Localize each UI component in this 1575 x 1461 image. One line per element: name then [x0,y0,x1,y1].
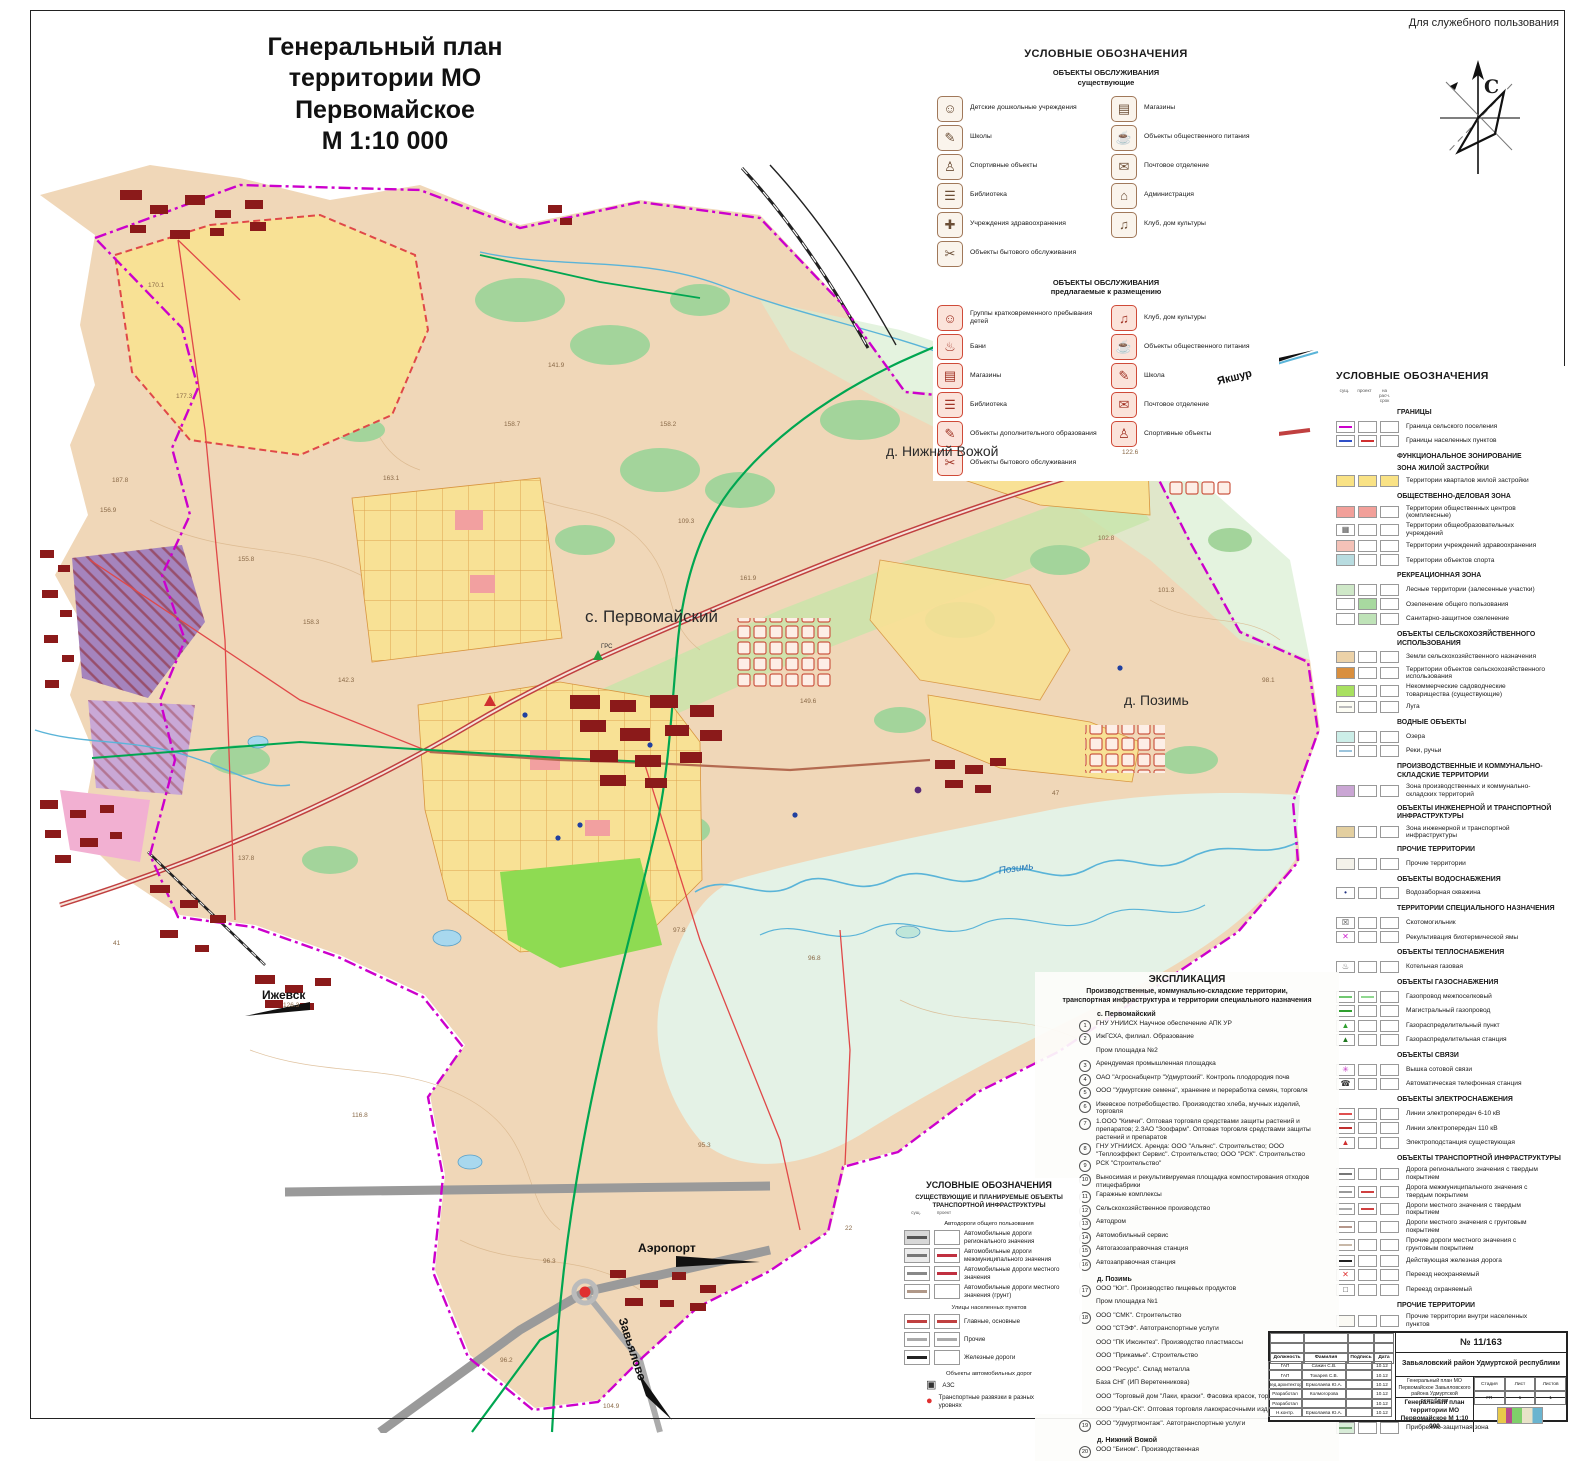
person-row: ГАП Сажин С.В. 10.12 [1268,1361,1394,1370]
person-name: Ермолаева Ю.А. [1302,1380,1346,1389]
item-number: 9 [1079,1160,1091,1172]
legend-label: Границы населенных пунктов [1406,437,1548,445]
item-text: Автодром [1096,1218,1321,1230]
services-legend-title: УСЛОВНЫЕ ОБОЗНАЧЕНИЯ [937,48,1275,60]
sheet-number: № 11/163 [1396,1333,1566,1353]
explication-row: 18 ООО "СМК". Строительство [1079,1312,1335,1324]
legend-row: Санитарно-защитное озеленение [1336,613,1566,625]
legend-entry: ОБЪЕКТЫ СВЯЗИ ✳ Вышка сотовой связи [1334,1052,1566,1076]
transport-row: Железные дороги [904,1350,1078,1365]
main-legend-rows: ГРАНИЦЫ Граница сельского поселения [1334,409,1566,1434]
existing-services-left: ☺ Детские дошкольные учреждения ✎ Школы … [937,93,1101,270]
legend-item-label: Объекты бытового обслуживания [970,459,1076,467]
swatch-planned [1358,421,1377,433]
swatch-line [1361,672,1375,674]
swatch-symbol: ▲ [1342,1022,1350,1030]
legend-section-heading: ВОДНЫЕ ОБЪЕКТЫ [1397,719,1566,728]
legend-section-heading: ПРОИЗВОДСТВЕННЫЕ И КОММУНАЛЬНО-СКЛАДСКИЕ… [1397,763,1566,780]
legend-row: Территории общественных центров (комплек… [1336,505,1566,520]
explication-row: Пром площадка №1 [1079,1298,1335,1310]
transport-label: Главные, основные [964,1318,1072,1325]
map-label: ГРС [601,644,613,650]
item-text: Арендуемая промышленная площадка [1096,1060,1321,1072]
swatch-line [1339,1260,1353,1262]
swatch-planned [1358,1034,1377,1046]
swatch-longterm [1380,731,1399,743]
legend-label: Скотомогильник [1406,919,1548,927]
legend-item-label: Библиотека [970,191,1007,199]
swatch-planned [1358,1078,1377,1090]
legend-item: ☰ Библиотека [937,183,1101,209]
legend-item: ✚ Учреждения здравоохранения [937,212,1101,238]
legend-item-label: Объекты бытового обслуживания [970,249,1076,257]
swatch-planned [1358,1005,1377,1017]
explication-entry: 8 ГНУ УГНИИСХ. Аренда: ООО "Альянс". Стр… [1039,1143,1335,1159]
legend-label: Озеленение общего пользования [1406,601,1548,609]
swatch-existing [1336,826,1355,838]
swatch-planned [1358,1186,1377,1198]
service-icon: ♫ [1111,212,1137,238]
existing-services-right: ▤ Магазины ☕ Объекты общественного питан… [1111,93,1275,270]
map-label: д. Нижний Вожой [886,443,998,459]
swatch-planned [1358,1255,1377,1267]
swatch-line [1339,559,1353,561]
legend-label: Территории объектов сельскохозяйственног… [1406,666,1548,681]
item-number: 2 [1079,1033,1091,1045]
legend-entry: ☎ Автоматическая телефонная станция [1334,1078,1566,1090]
legend-section-heading: ОБЩЕСТВЕННО-ДЕЛОВАЯ ЗОНА [1397,493,1566,502]
map-label: Аэропорт [638,1241,696,1255]
swatch-line [1339,1127,1353,1129]
swatch-planned [1358,887,1377,899]
swatch-longterm [1380,1255,1399,1267]
person-role: Вед.архитектор [1268,1380,1302,1389]
sheets-label: Листов [1535,1377,1566,1391]
explication-group-heading: д. Нижний Вожой [1097,1437,1335,1444]
swatch-line [1361,750,1375,752]
legend-section-heading: ФУНКЦИОНАЛЬНОЕ ЗОНИРОВАНИЕ [1397,453,1566,462]
legend-entry: ОБЪЕКТЫ ГАЗОСНАБЖЕНИЯ Газопровод межпосе… [1334,979,1566,1003]
elevation-mark: 109.3 [678,518,694,525]
swatch-line [1339,618,1353,620]
legend-entry: Линии электропередач 110 кВ [1334,1122,1566,1134]
transport-entry: Улицы населенных пунктов Главные, основн… [900,1305,1078,1329]
legend-label: Зона инженерной и транспортной инфрастру… [1406,825,1548,840]
explication-row: 7 1.ООО "Кимчи". Оптовая торговля средст… [1079,1118,1335,1142]
swatch-line [1339,603,1353,605]
swatch-existing: ☒ [1336,917,1355,929]
legend-entry: Действующая железная дорога [1334,1255,1566,1267]
person-role: Разработал [1268,1399,1302,1408]
stage-label: Стадия [1474,1377,1505,1391]
swatch-line [1339,589,1353,591]
swatch-line [1339,1244,1353,1246]
swatch-longterm [1380,961,1399,973]
legend-label: Лесные территории (залесенные участки) [1406,586,1548,594]
elevation-mark: 158.3 [303,619,319,626]
elevation-mark: 149.6 [800,698,816,705]
legend-entry: ▲ Электроподстанция существующая [1334,1137,1566,1149]
explication-entry: Пром площадка №2 [1039,1047,1335,1059]
swatch-longterm [1380,931,1399,943]
swatch-line [1361,706,1375,708]
swatch-planned [1358,540,1377,552]
person-row: Разработал 10.12 [1268,1399,1394,1408]
person-date: 10.12 [1372,1399,1392,1408]
swatch-existing [904,1350,930,1365]
elevation-mark: 163.1 [383,475,399,482]
legend-section-heading: ПРОЧИЕ ТЕРРИТОРИИ [1397,846,1566,855]
elevation-mark: 101.3 [1158,587,1174,594]
legend-row: Дорога межмуниципального значения с твер… [1336,1184,1566,1199]
transport-entry: Автомобильные дороги местного значения [900,1266,1078,1281]
legend-item-label: Бани [970,343,986,351]
swatch-line [1339,672,1353,674]
legend-item-label: Спортивные объекты [970,162,1037,170]
legend-row: Озера [1336,731,1566,743]
swatch-planned [1358,1221,1377,1233]
swatch-longterm [1380,1239,1399,1251]
swatch-longterm [1380,435,1399,447]
service-icon: ⌂ [1111,183,1137,209]
swatch-line [1361,480,1375,482]
swatch-line [937,1356,957,1358]
swatch-line [1339,480,1353,482]
service-icon: ✎ [1111,363,1137,389]
legend-row: Территории кварталов жилой застройки [1336,475,1566,487]
legend-entry: □ Переезд охраняемый [1334,1284,1566,1296]
legend-label: Зона производственных и коммунально-скла… [1406,783,1548,798]
swatch-existing [904,1332,930,1347]
legend-row: Дорога регионального значения с твердым … [1336,1166,1566,1181]
swatch-line [1361,1208,1375,1210]
legend-row: ▲ Электроподстанция существующая [1336,1137,1566,1149]
swatch-line [1339,1208,1353,1210]
legend-row: ▲ Газораспределительный пункт [1336,1020,1566,1032]
transport-column-headers: сущ.проект [904,1210,1078,1215]
legend-item: ▤ Магазины [1111,96,1275,122]
swatch-line [1361,996,1375,998]
legend-row: Дороги местного значения с твердым покры… [1336,1202,1566,1217]
swatch-longterm [1380,1078,1399,1090]
elevation-mark: 96.8 [808,955,821,962]
legend-label: Действующая железная дорога [1406,1257,1548,1265]
swatch-planned [1358,731,1377,743]
swatch-line [1361,440,1375,442]
service-icon: ♙ [937,154,963,180]
explication-row: 1 ГНУ УНИИСХ Научное обеспечение АПК УР [1079,1020,1335,1032]
swatch-line [1339,426,1353,428]
legend-label: Санитарно-защитное озеленение [1406,615,1548,623]
swatch-planned [1358,931,1377,943]
explication-row: 4 ОАО "Агроснабцентр "Удмуртский". Контр… [1079,1074,1335,1086]
legend-label: Переезд охраняемый [1406,1286,1548,1294]
legend-entry: ▦ Территории общеобразовательных учрежде… [1334,522,1566,537]
elevation-mark: 98.1 [1262,677,1275,684]
swatch-line [1361,863,1375,865]
explication-entry: 7 1.ООО "Кимчи". Оптовая торговля средст… [1039,1118,1335,1142]
swatch-line [1339,511,1353,513]
swatch-symbol: ▲ [1342,1036,1350,1044]
swatch-line [1361,1113,1375,1115]
legend-section-heading: ОБЪЕКТЫ ТЕПЛОСНАБЖЕНИЯ [1397,949,1566,958]
person-signature [1346,1408,1372,1417]
transport-group-heading: Объекты автомобильных дорог [900,1371,1078,1377]
swatch-longterm [1380,887,1399,899]
transport-row: Автомобильные дороги местного значения (… [904,1284,1078,1299]
swatch-longterm [1380,826,1399,838]
swatch-line [1361,426,1375,428]
service-icon: ✚ [937,212,963,238]
swatch-planned [1358,1122,1377,1134]
swatch-line [1339,996,1353,998]
swatch-planned [1358,1284,1377,1296]
legend-entry: ФУНКЦИОНАЛЬНОЕ ЗОНИРОВАНИЕ ЗОНА ЖИЛОЙ ЗА… [1334,453,1566,487]
explication-entry: 3 Арендуемая промышленная площадка [1039,1060,1335,1072]
explication-row: Пром площадка №2 [1079,1047,1335,1059]
legend-label: Территории объектов спорта [1406,557,1548,565]
swatch-planned [1358,1269,1377,1281]
explication-entry: 14 Автомобильный сервис [1039,1232,1335,1244]
transport-row: ▣ АЗС [926,1380,1078,1391]
explication-entry: 11 Гаражные комплексы [1039,1191,1335,1203]
legend-entry: ГРАНИЦЫ Граница сельского поселения [1334,409,1566,433]
swatch-longterm [1380,1137,1399,1149]
legend-label: Водозаборная скважина [1406,889,1548,897]
legend-item: ✉ Почтовое отделение [1111,392,1275,418]
swatch-symbol: ▦ [1342,526,1350,534]
swatch-symbol: ✕ [1342,933,1349,941]
legend-label: Территории общеобразовательных учреждени… [1406,522,1548,537]
map-label: д. Позимь [1124,692,1189,708]
legend-entry: РЕКРЕАЦИОННАЯ ЗОНА Лесные территории (за… [1334,572,1566,596]
service-icon: ☕ [1111,334,1137,360]
swatch-existing [1336,701,1355,713]
legend-item: ☕ Объекты общественного питания [1111,125,1275,151]
document-title: Генеральный план территории МО Первомайс… [1396,1398,1474,1432]
swatch-line [1339,656,1353,658]
transport-label: Автомобильные дороги регионального значе… [964,1230,1072,1245]
map-label: с. Первомайский [585,607,718,627]
column-header: проект [1356,388,1373,403]
person-role: Н.контр. [1268,1408,1302,1417]
swatch-planned [934,1248,960,1263]
legend-row: Зона производственных и коммунально-скла… [1336,783,1566,798]
legend-entry: ПРОЧИЕ ТЕРРИТОРИИ Прочие территории [1334,846,1566,870]
persons-rows: ГАП Сажин С.В. 10.12 ГАП Токарев С.В. 10… [1268,1361,1394,1417]
transport-row: Автомобильные дороги местного значения [904,1266,1078,1281]
legend-entry: Границы населенных пунктов [1334,435,1566,447]
legend-subsection-heading: ЗОНА ЖИЛОЙ ЗАСТРОЙКИ [1397,465,1566,472]
swatch-longterm [1380,540,1399,552]
swatch-line [1361,1226,1375,1228]
legend-row: Зона инженерной и транспортной инфрастру… [1336,825,1566,840]
legend-entry: ОБЪЕКТЫ ВОДОСНАБЖЕНИЯ • Водозаборная скв… [1334,876,1566,900]
swatch-existing: ✕ [1336,931,1355,943]
swatch-planned [1358,1239,1377,1251]
title-line-2: территории МО Первомайское [205,63,565,126]
swatch-line [1339,1320,1353,1322]
explication-entry: 12 Сельскохозяйственное производство [1039,1205,1335,1217]
legend-label: Линии электропередач 110 кВ [1406,1125,1548,1133]
swatch-existing [1336,731,1355,743]
explication-group-heading: с. Первомайский [1097,1011,1335,1018]
explication-row: 10 Выносимая и рекультивируемая площадка… [1079,1174,1335,1190]
stamp-thumbnail [1474,1398,1566,1432]
swatch-planned [1358,785,1377,797]
swatch-longterm [1380,1315,1399,1327]
elevation-mark: 142.3 [338,677,354,684]
person-signature [1346,1361,1372,1370]
transport-group-heading: Автодороги общего пользования [900,1221,1078,1227]
swatch-planned [1358,1203,1377,1215]
item-number: 7 [1079,1118,1091,1130]
explication-row: 16 Автозаправочная станция [1079,1259,1335,1271]
swatch-planned [1358,858,1377,870]
legend-item: ☰ Библиотека [937,392,1101,418]
legend-row: Границы населенных пунктов [1336,435,1566,447]
legend-row: ♨ Котельная газовая [1336,961,1566,973]
transport-entry: Объекты автомобильных дорог ▣ АЗС [900,1371,1078,1391]
swatch-longterm [1380,613,1399,625]
elevation-mark: 22 [845,1225,852,1232]
explication-group-heading: д. Позимь [1097,1276,1335,1283]
legend-label: Дороги местного значения с твердым покры… [1406,1202,1548,1217]
swatch-line [1339,790,1353,792]
swatch-longterm [1380,598,1399,610]
elevation-mark: 41 [113,940,120,947]
swatch-existing [1336,667,1355,679]
service-icon: ♫ [1111,305,1137,331]
item-text: Пром площадка №2 [1096,1047,1321,1059]
legend-entry: Дороги местного значения с твердым покры… [1334,1202,1566,1217]
swatch-existing [904,1284,930,1299]
swatch-planned [934,1314,960,1329]
explication-entry: 13 Автодром [1039,1218,1335,1230]
swatch-planned [1358,1422,1377,1434]
swatch-planned [934,1332,960,1347]
legend-entry: ОБЩЕСТВЕННО-ДЕЛОВАЯ ЗОНА Территории обще… [1334,493,1566,520]
swatch-existing [1336,554,1355,566]
legend-item-label: Объекты дополнительного образования [970,430,1097,438]
transport-label: Автомобильные дороги местного значения (… [964,1284,1072,1299]
item-text: 1.ООО "Кимчи". Оптовая торговля средства… [1096,1118,1321,1142]
swatch-planned [1358,1108,1377,1120]
explication-title: ЭКСПЛИКАЦИЯ [1039,974,1335,985]
swatch-line [937,1236,957,1238]
explication-row: 20 ООО "Бином". Производственная [1079,1446,1335,1458]
swatch-planned [1358,598,1377,610]
transport-row: Главные, основные [904,1314,1078,1329]
swatch-longterm [1380,1108,1399,1120]
legend-row: Граница сельского поселения [1336,421,1566,433]
restricted-use-note: Для служебного пользования [1409,17,1559,29]
swatch-existing [1336,584,1355,596]
swatch-longterm [1380,584,1399,596]
service-icon: ☺ [937,305,963,331]
swatch-symbol: ✕ [1342,1271,1349,1279]
transport-entry: Автодороги общего пользования Автомобиль… [900,1221,1078,1245]
proposed-services-heading: ОБЪЕКТЫ ОБСЛУЖИВАНИЯ предлагаемые к разм… [937,278,1275,298]
legend-section-heading: ОБЪЕКТЫ СЕЛЬСКОХОЗЯЙСТВЕННОГО ИСПОЛЬЗОВА… [1397,631,1566,648]
transport-row: Автомобильные дороги регионального значе… [904,1230,1078,1245]
explication-row: 12 Сельскохозяйственное производство [1079,1205,1335,1217]
swatch-line [1339,440,1353,442]
item-text: ООО "Юг". Производство пищевых продуктов [1096,1285,1321,1297]
swatch-planned [1358,826,1377,838]
swatch-existing [1336,598,1355,610]
elevation-mark: 155.8 [238,556,254,563]
swatch-longterm [1380,1020,1399,1032]
legend-entry: Территории объектов спорта [1334,554,1566,566]
service-icon: ☰ [937,392,963,418]
transport-entry: Автомобильные дороги местного значения (… [900,1284,1078,1299]
legend-label: Дорога регионального значения с твердым … [1406,1166,1548,1181]
swatch-planned [1358,685,1377,697]
transport-legend: УСЛОВНЫЕ ОБОЗНАЧЕНИЯ СУЩЕСТВУЮЩИЕ И ПЛАН… [896,1178,1082,1414]
transport-label: АЗС [942,1382,1050,1389]
swatch-existing: • [1336,887,1355,899]
person-row: Вед.архитектор Ермолаева Ю.А. 10.12 [1268,1380,1394,1389]
swatch-line [1361,790,1375,792]
legend-row: Лесные территории (залесенные участки) [1336,584,1566,596]
item-text: ГНУ УНИИСХ Научное обеспечение АПК УР [1096,1020,1321,1032]
legend-label: Дороги местного значения с грунтовым пок… [1406,1219,1548,1234]
legend-item-label: Библиотека [970,401,1007,409]
legend-entry: ▲ Газораспределительный пункт [1334,1020,1566,1032]
legend-entry: Дороги местного значения с грунтовым пок… [1334,1219,1566,1234]
swatch-line [907,1320,927,1322]
person-name: Токарев С.В. [1302,1370,1346,1379]
legend-row: Магистральный газопровод [1336,1005,1566,1017]
legend-label: Территории учреждений здравоохранения [1406,542,1548,550]
explication-entry: д. Нижний Вожой 20 ООО "Бином". Производ… [1039,1437,1335,1458]
person-role: ГАП [1268,1370,1302,1379]
swatch-longterm [1380,1168,1399,1180]
legend-row: □ Переезд охраняемый [1336,1284,1566,1296]
swatch-line [1361,966,1375,968]
legend-item-label: Детские дошкольные учреждения [970,104,1077,112]
explication-row: 9 РСК "Строительство" [1079,1160,1335,1172]
legend-row: Прочие территории [1336,858,1566,870]
legend-label: Прочие дороги местного значения с грунто… [1406,1237,1548,1252]
explication-entry: 10 Выносимая и рекультивируемая площадка… [1039,1174,1335,1190]
legend-row: Луга [1336,701,1566,713]
person-signature [1346,1389,1372,1398]
swatch-line [1361,511,1375,513]
elevation-mark: 116.8 [352,1112,368,1119]
swatch-line [1361,1069,1375,1071]
swatch-existing [904,1266,930,1281]
swatch-symbol: □ [1343,1286,1348,1294]
service-icon: ✉ [1111,154,1137,180]
transport-entry: Железные дороги [900,1350,1078,1365]
transport-entry: Автомобильные дороги межмуниципального з… [900,1248,1078,1263]
swatch-symbol: ☒ [1342,919,1349,927]
legend-row: ▦ Территории общеобразовательных учрежде… [1336,522,1566,537]
swatch-existing [1336,685,1355,697]
swatch-longterm [1380,991,1399,1003]
swatch-planned [934,1350,960,1365]
swatch-longterm [1380,506,1399,518]
swatch-longterm [1380,1064,1399,1076]
swatch-longterm [1380,1034,1399,1046]
legend-label: Переезд неохраняемый [1406,1271,1548,1279]
legend-row: ✕ Переезд неохраняемый [1336,1269,1566,1281]
swatch-line [1361,922,1375,924]
item-text: Ижевское потребобщество. Производство хл… [1096,1101,1321,1117]
swatch-longterm [1380,651,1399,663]
